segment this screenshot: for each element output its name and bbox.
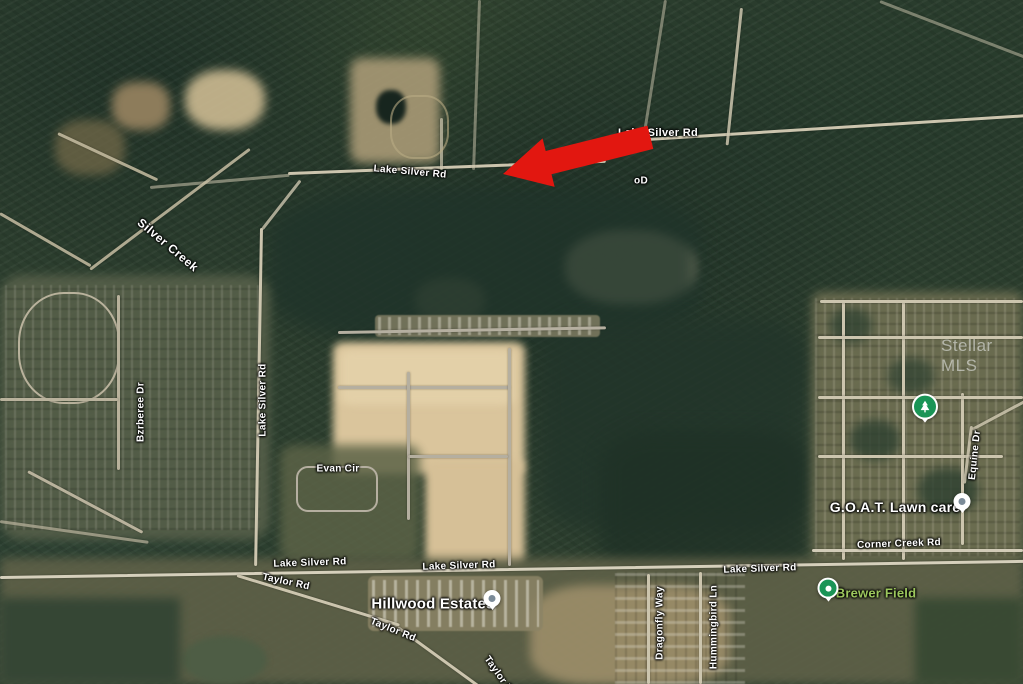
- road-label: Evan Cir: [317, 464, 360, 475]
- road-label: Taylor Rd: [369, 616, 418, 644]
- road-label: Lake Silver Rd: [422, 559, 495, 573]
- pin-tail: [824, 597, 832, 602]
- road-label: Taylor Rd: [261, 572, 310, 593]
- poi-label: G.O.A.T. Lawn care: [830, 499, 960, 515]
- goat-lawn-care-pin[interactable]: [954, 493, 971, 513]
- road-label: Equine Dr: [967, 430, 983, 481]
- pin-tail: [958, 508, 966, 513]
- partial-road-label: oD: [634, 176, 648, 187]
- pin-tail: [921, 418, 929, 423]
- poi-label: Brewer Field: [836, 586, 916, 601]
- pin-dot: [959, 498, 966, 505]
- park-tree-icon: [912, 394, 938, 420]
- road-label: Hummingbird Ln: [709, 585, 720, 669]
- creek-label: Silver Creek: [135, 215, 202, 274]
- park-pin[interactable]: [912, 394, 938, 423]
- pin-dot: [489, 595, 496, 602]
- pin-dot: [825, 585, 831, 591]
- label-layer: Lake Silver RdLake Silver RdSilver Creek…: [0, 0, 1023, 684]
- brewer-field-pin[interactable]: [818, 578, 839, 602]
- poi-label: Hillwood Estates: [371, 596, 494, 613]
- road-label: Taylor Rd: [482, 654, 519, 684]
- road-label: Lake Silver Rd: [723, 562, 796, 576]
- park-dot-icon: [818, 578, 839, 599]
- pin-tail: [488, 605, 496, 610]
- road-label: Lake Silver Rd: [273, 556, 346, 570]
- hillwood-estates-pin[interactable]: [484, 590, 501, 610]
- satellite-map[interactable]: Lake Silver RdLake Silver RdSilver Creek…: [0, 0, 1023, 684]
- watermark: Stellar MLS: [941, 336, 1023, 376]
- tree-icon: [918, 400, 932, 414]
- road-label: Bzrberee Dr: [136, 382, 147, 442]
- road-label: Corner Creek Rd: [857, 537, 941, 551]
- road-label: Lake Silver Rd: [258, 363, 269, 436]
- road-label: Dragonfly Way: [655, 586, 666, 660]
- road-label: Lake Silver Rd: [373, 163, 447, 180]
